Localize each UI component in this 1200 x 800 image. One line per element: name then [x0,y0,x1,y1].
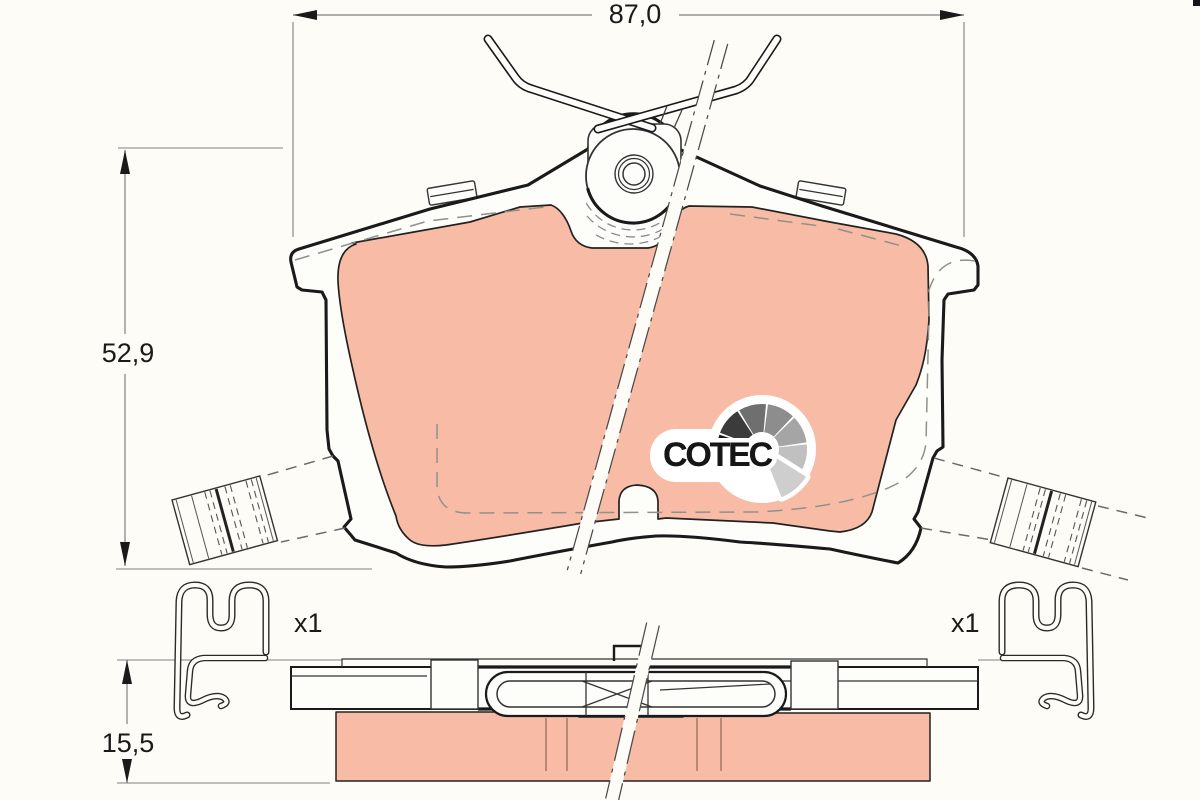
svg-text:x1: x1 [951,608,980,638]
svg-text:COTEC: COTEC [663,436,773,474]
svg-text:15,5: 15,5 [102,728,155,758]
svg-text:x1: x1 [294,608,323,638]
svg-text:52,9: 52,9 [102,338,155,368]
svg-text:87,0: 87,0 [609,0,662,29]
